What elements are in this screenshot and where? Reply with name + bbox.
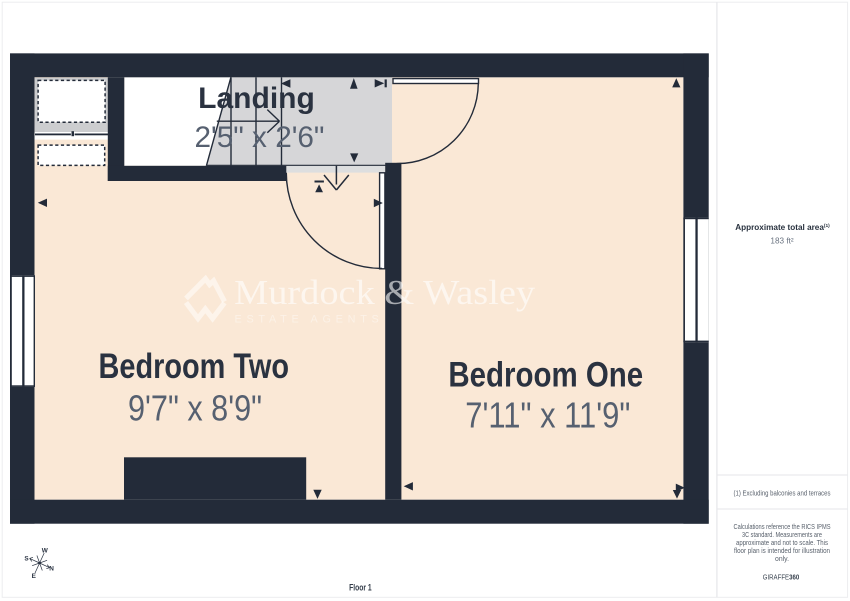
svg-text:Murdock & Wasley: Murdock & Wasley — [234, 274, 536, 312]
svg-text:ESTATE AGENTS: ESTATE AGENTS — [235, 314, 384, 326]
svg-text:Bedroom One: Bedroom One — [448, 356, 643, 395]
svg-text:7'11" x 11'9": 7'11" x 11'9" — [465, 395, 630, 436]
svg-text:Bedroom Two: Bedroom Two — [99, 347, 290, 386]
svg-text:Landing: Landing — [198, 82, 315, 115]
svg-text:E: E — [32, 573, 37, 580]
svg-text:Approximate total area(1): Approximate total area(1) — [735, 223, 830, 232]
svg-text:9'7" x 8'9": 9'7" x 8'9" — [128, 387, 262, 428]
svg-text:S: S — [24, 556, 29, 563]
svg-text:183 ft²: 183 ft² — [770, 237, 793, 246]
svg-text:GIRAFFE360: GIRAFFE360 — [763, 574, 800, 581]
svg-text:Floor 1: Floor 1 — [349, 582, 372, 593]
svg-text:N: N — [49, 566, 54, 573]
svg-text:W: W — [42, 548, 49, 555]
svg-text:2'5" x 2'6": 2'5" x 2'6" — [195, 121, 325, 154]
svg-text:only.: only. — [775, 554, 789, 563]
svg-text:(1) Excluding balconies and te: (1) Excluding balconies and terraces — [734, 489, 831, 498]
